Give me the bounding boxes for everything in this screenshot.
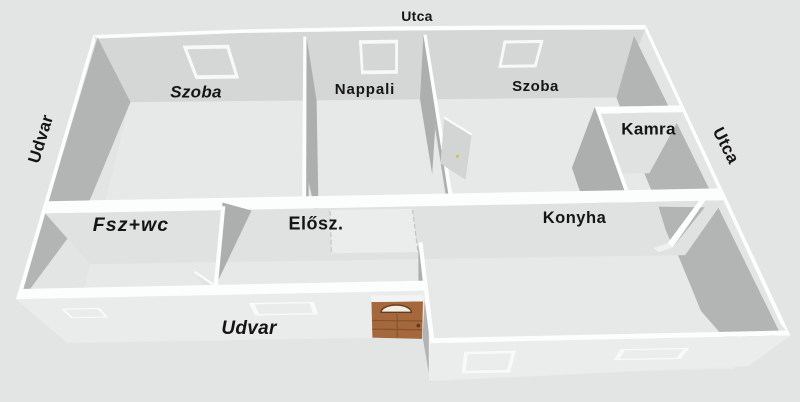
svg-text:Utca: Utca bbox=[401, 8, 433, 24]
svg-text:Konyha: Konyha bbox=[543, 209, 607, 227]
svg-text:Nappali: Nappali bbox=[335, 81, 395, 98]
svg-text:Szoba: Szoba bbox=[512, 78, 559, 95]
svg-text:Kamra: Kamra bbox=[621, 120, 676, 139]
svg-text:Fsz+wc: Fsz+wc bbox=[93, 214, 170, 236]
svg-text:Elősz.: Elősz. bbox=[288, 214, 343, 234]
svg-text:Szoba: Szoba bbox=[170, 83, 222, 102]
svg-text:Udvar: Udvar bbox=[221, 318, 278, 339]
